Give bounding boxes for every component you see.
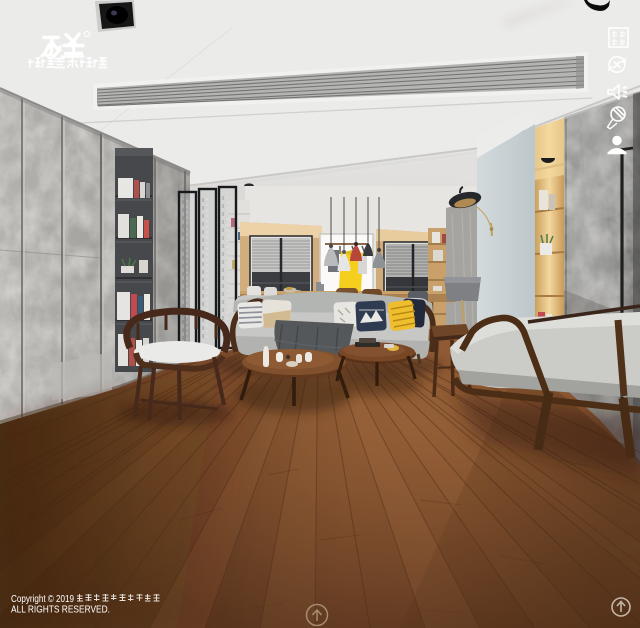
svg-text:Copyright © 2019: Copyright © 2019: [11, 594, 74, 605]
svg-text:ALL RIGHTS RESERVED.: ALL RIGHTS RESERVED.: [11, 605, 110, 616]
